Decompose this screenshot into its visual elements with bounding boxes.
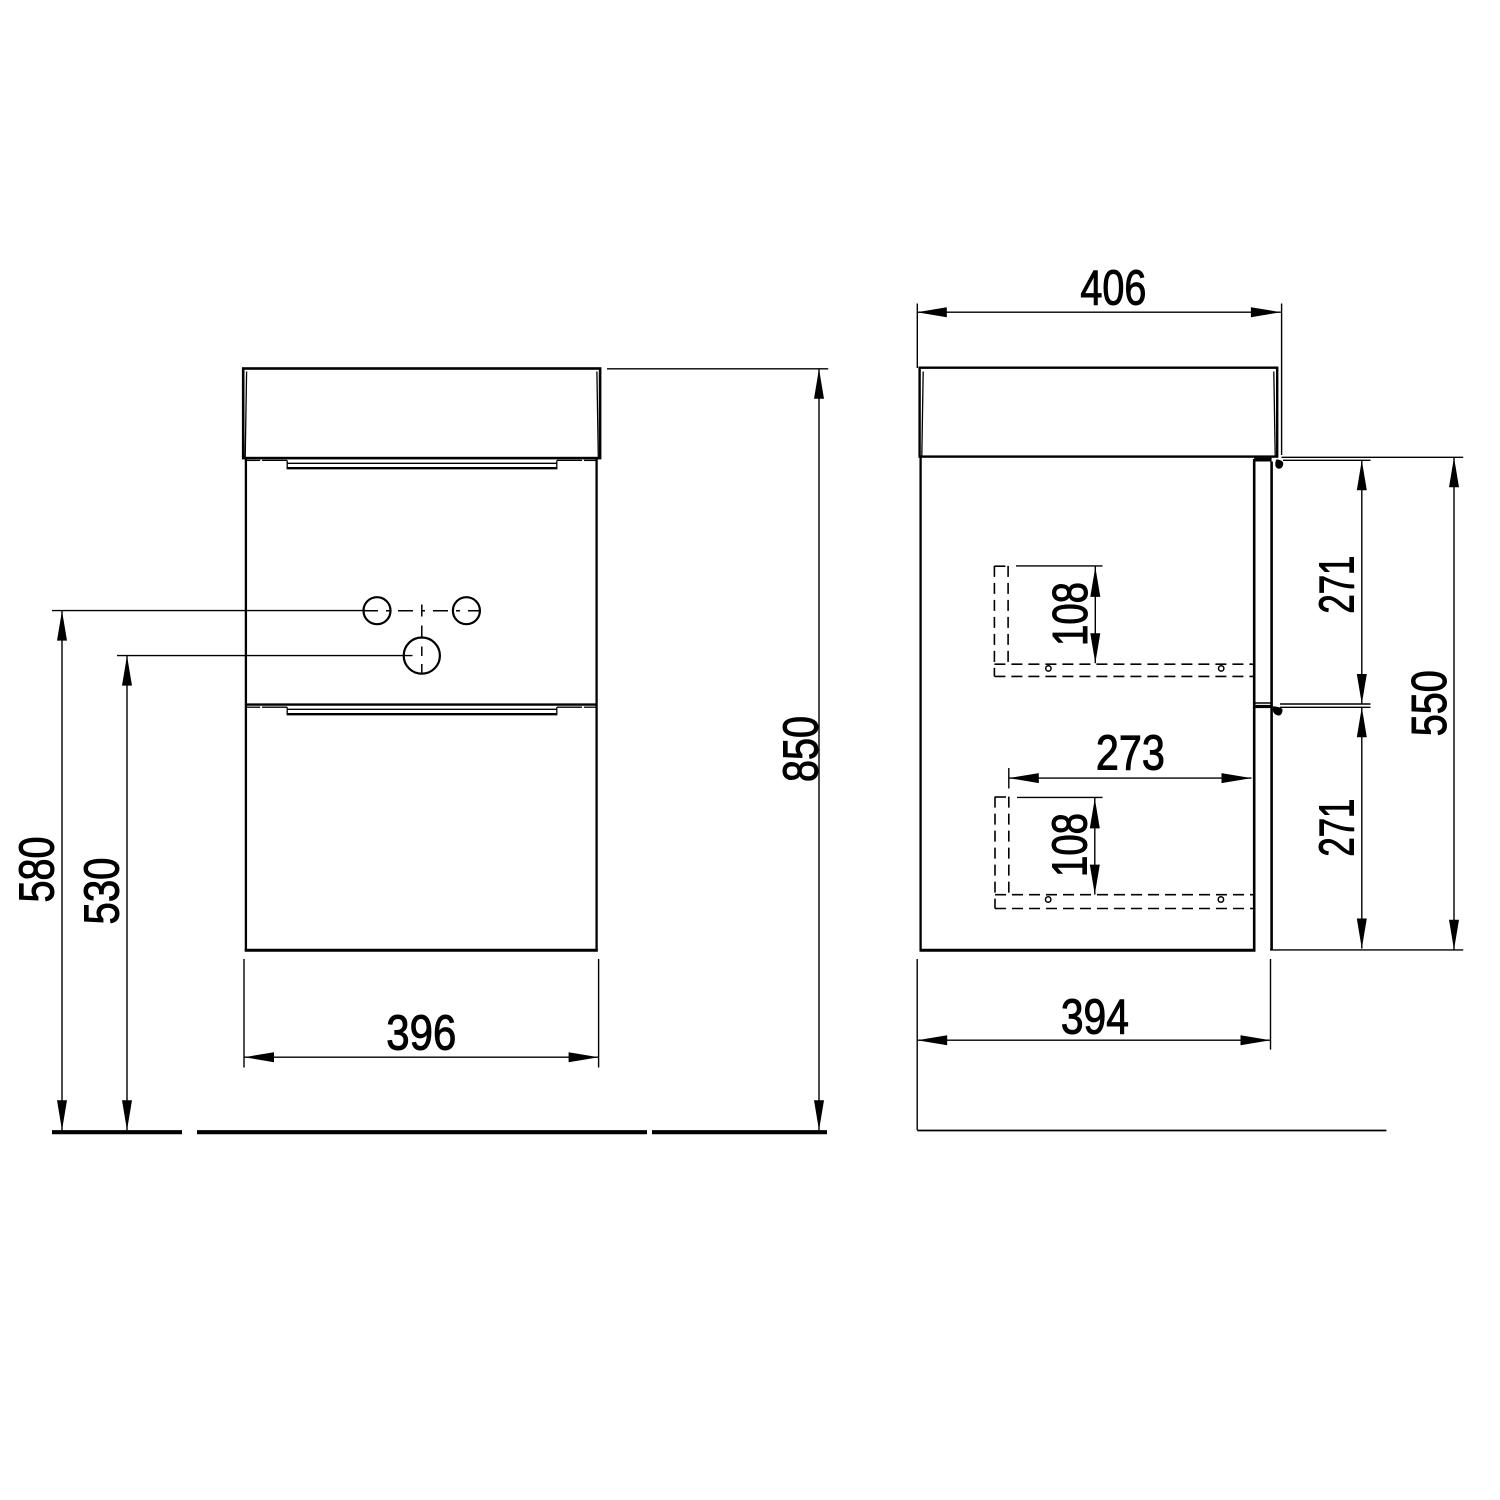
svg-text:406: 406 [1080, 261, 1146, 315]
svg-text:850: 850 [775, 716, 829, 782]
svg-text:271: 271 [1311, 799, 1365, 857]
svg-text:108: 108 [1044, 813, 1098, 877]
svg-text:530: 530 [76, 858, 130, 925]
svg-text:394: 394 [1061, 991, 1129, 1045]
svg-text:580: 580 [11, 837, 65, 903]
svg-text:550: 550 [1403, 670, 1457, 736]
svg-text:108: 108 [1044, 582, 1098, 646]
svg-text:396: 396 [386, 1007, 456, 1061]
svg-text:271: 271 [1311, 556, 1365, 614]
svg-text:273: 273 [1096, 727, 1165, 781]
